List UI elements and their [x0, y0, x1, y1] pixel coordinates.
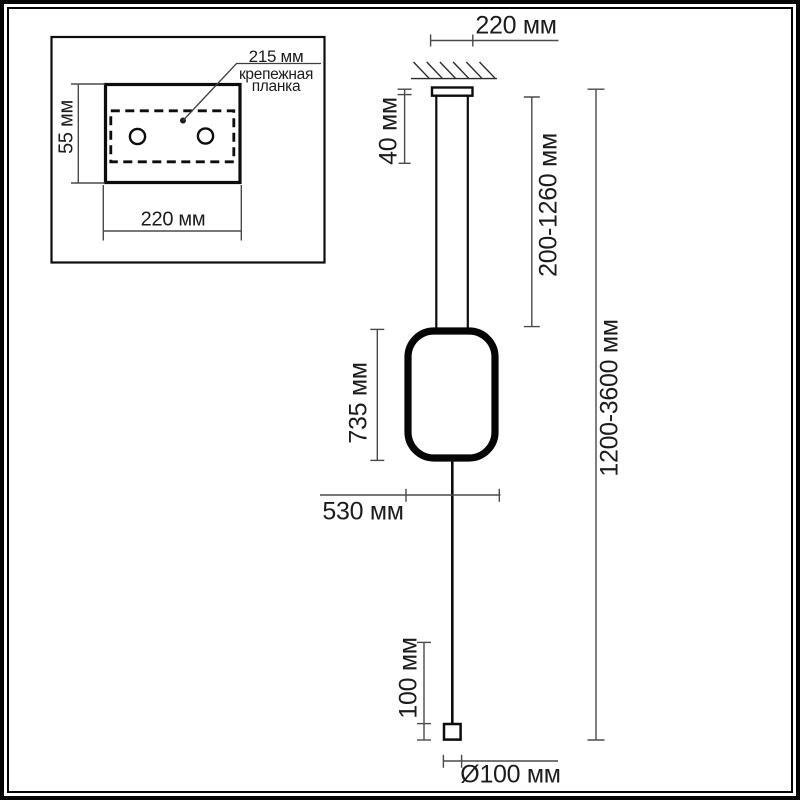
ceiling-canopy [432, 88, 473, 96]
plate-offset-label: 215 мм [249, 47, 304, 67]
plate-height-label: 55 мм [55, 100, 78, 154]
screw-hole-left [130, 129, 145, 144]
counterweight-cap [444, 724, 461, 740]
shade-height-label: 735 мм [345, 362, 374, 443]
counterweight-height-label: 100 мм [394, 637, 423, 718]
dimension-drawing: 215 мм крепежная планка 55 мм 220 мм 220… [0, 0, 800, 800]
lamp-body [408, 331, 495, 458]
overall-range-label: 1200-3600 мм [596, 319, 625, 476]
shade-width-label: 530 мм [322, 497, 403, 526]
suspension-range-label: 200-1260 мм [534, 133, 563, 277]
suspension-rod [436, 96, 468, 328]
counterweight-diameter-label: Ø100 мм [460, 761, 560, 790]
canopy-height-label: 40 мм [374, 97, 403, 165]
mounting-plate [106, 85, 241, 183]
ceiling-hatch [411, 62, 497, 79]
screw-hole-right [198, 128, 213, 143]
plate-width-label: 220 мм [141, 209, 206, 232]
canopy-width-label: 220 мм [475, 11, 556, 40]
plate-name-label: крепежная планка [239, 69, 313, 93]
